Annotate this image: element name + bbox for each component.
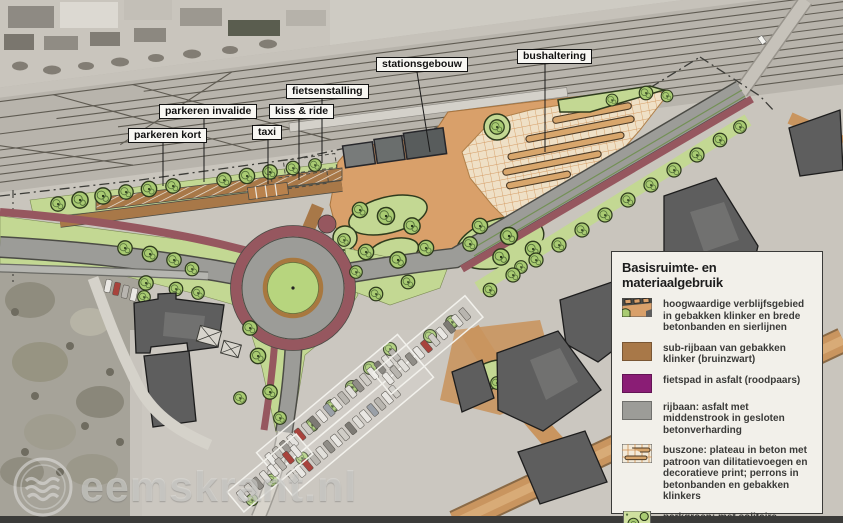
legend-item-text: parkgroen: met solitaire bomen, hoogwaar… <box>663 511 813 523</box>
legend-swatch-verblijfsgebied-icon <box>622 298 652 317</box>
label-parkeren-kort: parkeren kort <box>128 128 207 143</box>
legend-item-fietspad: fietspad in asfalt (roodpaars) <box>622 374 813 393</box>
legend-swatch-rijbaan <box>622 401 652 420</box>
mini-cycle-circle <box>318 215 336 233</box>
label-bushaltering: bushaltering <box>517 49 592 64</box>
site-plan-screenshot: parkeren kort parkeren invalide taxi kis… <box>0 0 843 523</box>
legend-panel: Basisruimte- en materiaalgebruik hoogwaa… <box>611 251 823 514</box>
label-taxi: taxi <box>252 125 282 140</box>
legend-item-text: sub-rijbaan van gebakken klinker (bruinz… <box>663 342 813 366</box>
legend-item-buszone: buszone: plateau in beton met patroon va… <box>622 444 813 503</box>
legend-item-rijbaan: rijbaan: asfalt met middenstrook in gesl… <box>622 401 813 437</box>
label-stationsgebouw: stationsgebouw <box>376 57 468 72</box>
legend-item-text: buszone: plateau in beton met patroon va… <box>663 444 813 503</box>
legend-title: Basisruimte- en materiaalgebruik <box>622 260 813 290</box>
photo-gardens-bottomleft <box>0 255 142 523</box>
legend-swatch-buszone-icon <box>622 444 652 463</box>
legend-swatch-parkgroen-icon <box>622 511 652 523</box>
legend-item-text: hoogwaardige verblijfsgebied in gebakken… <box>663 298 813 334</box>
label-fietsenstalling: fietsenstalling <box>286 84 369 99</box>
legend-item-sub-rijbaan: sub-rijbaan van gebakken klinker (bruinz… <box>622 342 813 366</box>
legend-item-verblijfsgebied: hoogwaardige verblijfsgebied in gebakken… <box>622 298 813 334</box>
legend-item-text: rijbaan: asfalt met middenstrook in gesl… <box>663 401 813 437</box>
legend-item-parkgroen: parkgroen: met solitaire bomen, hoogwaar… <box>622 511 813 523</box>
label-parkeren-invalide: parkeren invalide <box>159 104 257 119</box>
label-kiss-ride: kiss & ride <box>269 104 334 119</box>
legend-swatch-fietspad <box>622 374 652 393</box>
legend-item-text: fietspad in asfalt (roodpaars) <box>663 374 800 387</box>
legend-swatch-sub-rijbaan <box>622 342 652 361</box>
